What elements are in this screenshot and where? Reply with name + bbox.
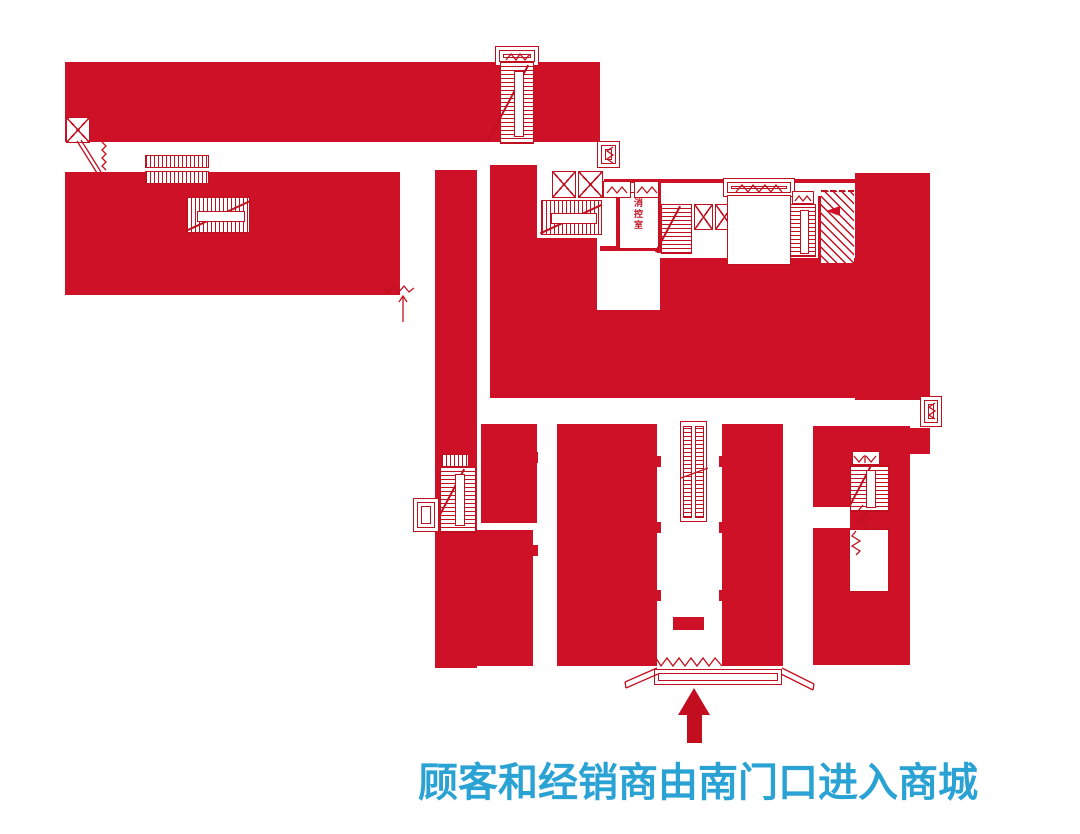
wall-bump (719, 590, 726, 601)
corridor-slit (813, 507, 850, 528)
south-center-block (557, 424, 657, 666)
direction-arrow-icon (678, 688, 710, 715)
escalator-icon (541, 200, 602, 235)
fire-control-room: 消控室 (619, 192, 659, 249)
south-east-complex-ext (910, 428, 930, 454)
door-leaf-icon (624, 664, 658, 690)
lobby-room (727, 195, 791, 265)
escalator-icon (145, 155, 209, 168)
elevator-lobby (551, 169, 604, 201)
core-left-column (490, 165, 537, 398)
wall-bump (719, 522, 726, 533)
info-desk (673, 617, 704, 630)
entrance-canopy-icon (654, 669, 782, 685)
escalator-icon (680, 421, 707, 522)
wall-connector-icon (75, 140, 109, 176)
stairs-icon (500, 62, 534, 144)
escalator-landing-icon (441, 454, 469, 467)
north-door-icon (384, 284, 418, 324)
core-fill-left (537, 238, 597, 310)
east-exit-door-icon (920, 396, 942, 427)
side-door-frame-icon (413, 498, 439, 532)
wall-bump (654, 456, 661, 467)
stairs-icon (440, 467, 476, 533)
floor-plan: 消控室 (0, 0, 1080, 834)
entrance-caption: 顾客和经销商由南门口进入商城 (418, 750, 958, 802)
core-fill-right (660, 258, 855, 310)
west-hall (65, 172, 400, 295)
elevator-door-icon (597, 141, 620, 168)
wall-bump (531, 545, 538, 556)
ramp-icon (821, 190, 854, 263)
ramp-arrow-icon (826, 206, 840, 216)
break-line-icon (858, 505, 868, 531)
wall-bump (719, 456, 726, 467)
elevator-icon (552, 171, 576, 198)
north-east-block (855, 173, 930, 400)
direction-arrow-stem (687, 713, 702, 743)
stairs-icon (850, 465, 889, 512)
middle-belt (537, 310, 855, 398)
stairs-icon (661, 204, 692, 254)
entrance-threshold-icon (656, 655, 722, 669)
stairs-icon (790, 204, 816, 257)
elevator-icon (578, 171, 603, 198)
door-leaf-icon (781, 664, 815, 692)
fire-control-room-label: 消控室 (632, 198, 641, 231)
elevator-icon (694, 204, 713, 230)
break-line-icon (851, 531, 861, 555)
south-right-block (722, 424, 783, 666)
vestibule-door-icon (792, 191, 814, 204)
south-west-block-lower (477, 530, 533, 666)
south-west-block-upper (481, 424, 537, 523)
wall-bump (531, 452, 538, 463)
stair-doors-icon (852, 451, 880, 465)
mid-vertical-strip (435, 170, 477, 668)
wall-bump (654, 522, 661, 533)
wall-bump (654, 590, 661, 601)
vestibule-door-icon (603, 181, 631, 198)
stairs-icon (186, 197, 250, 233)
escalator-icon (145, 171, 209, 184)
vestibule-door-icon (634, 181, 659, 198)
